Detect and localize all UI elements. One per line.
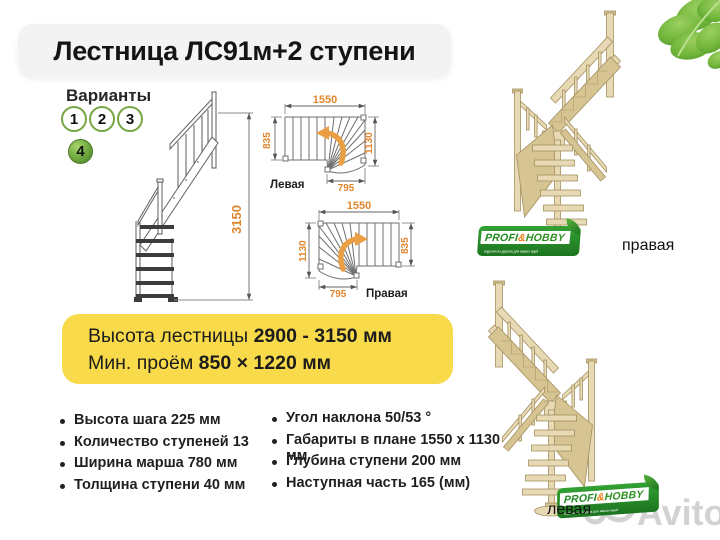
spec-item: Количество ступеней 13 bbox=[60, 434, 275, 456]
title-banner: Лестница ЛС91м+2 ступени bbox=[18, 24, 451, 78]
side-view-diagram: 3150 bbox=[122, 88, 262, 310]
bullet-dot bbox=[272, 482, 277, 487]
bullet-dot bbox=[272, 460, 277, 465]
bullet-dot bbox=[60, 462, 65, 467]
bullet-dot bbox=[60, 419, 65, 424]
plan-right-top-dim: 1550 bbox=[347, 200, 371, 212]
logo-text-band: PROFI&HOBBY bbox=[480, 231, 570, 244]
spec-item: Толщина ступени 40 мм bbox=[60, 477, 275, 499]
side-height-dim: 3150 bbox=[229, 205, 244, 234]
specs-left-column: Высота шага 225 мм Количество ступеней 1… bbox=[60, 412, 275, 499]
bullet-dot bbox=[60, 484, 65, 489]
leaf-decoration bbox=[632, 0, 720, 82]
plan-left-top-dim: 1550 bbox=[313, 94, 337, 106]
plan-right-diagram: 1550 1130 835 795 Правая bbox=[298, 198, 422, 302]
bullet-dot bbox=[272, 439, 277, 444]
variant-option-2: 2 bbox=[89, 106, 115, 132]
photo-label-right: правая bbox=[622, 237, 674, 255]
brand-logo-top: PROFI&HOBBY изделия из дерева для ваших … bbox=[478, 226, 580, 256]
plan-right-label: Правая bbox=[366, 288, 408, 300]
plan-right-left-dim: 1130 bbox=[298, 240, 309, 262]
banner-line-opening: Мин. проём 850 × 1220 мм bbox=[88, 350, 453, 377]
variant-option-1: 1 bbox=[61, 106, 87, 132]
variant-option-4-selected: 4 bbox=[68, 139, 93, 164]
bullet-dot bbox=[60, 441, 65, 446]
plan-right-bottom-dim: 795 bbox=[330, 289, 347, 300]
banner-line-height: Высота лестницы 2900 - 3150 мм bbox=[88, 323, 453, 350]
staircase-photo-right bbox=[452, 5, 657, 255]
plan-right-right-dim: 835 bbox=[400, 237, 411, 254]
logo-tagline: изделия из дерева для ваших идей bbox=[484, 250, 578, 253]
spec-item: Ширина марша 780 мм bbox=[60, 455, 275, 477]
page-title: Лестница ЛС91м+2 ступени bbox=[54, 36, 416, 67]
plan-left-right-dim: 1130 bbox=[364, 132, 375, 154]
plan-left-label: Левая bbox=[270, 179, 305, 191]
spec-item: Высота шага 225 мм bbox=[60, 412, 275, 434]
plan-left-diagram: 1550 835 1130 795 Левая bbox=[262, 92, 386, 194]
dimensions-banner: Высота лестницы 2900 - 3150 мм Мин. проё… bbox=[62, 314, 453, 384]
product-infographic: Лестница ЛС91м+2 ступени Варианты 1 2 3 … bbox=[0, 0, 720, 540]
photo-label-left: левая bbox=[547, 501, 591, 519]
bullet-dot bbox=[272, 417, 277, 422]
plan-left-bottom-dim: 795 bbox=[338, 183, 355, 194]
plan-left-left-dim: 835 bbox=[262, 132, 273, 149]
